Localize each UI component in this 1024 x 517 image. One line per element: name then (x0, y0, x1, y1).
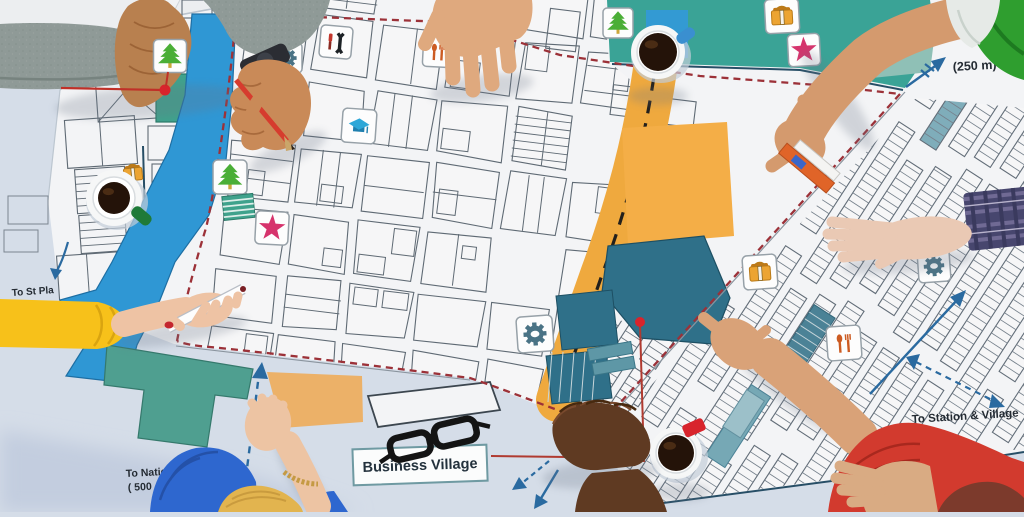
svg-text:( 500: ( 500 (128, 481, 153, 494)
